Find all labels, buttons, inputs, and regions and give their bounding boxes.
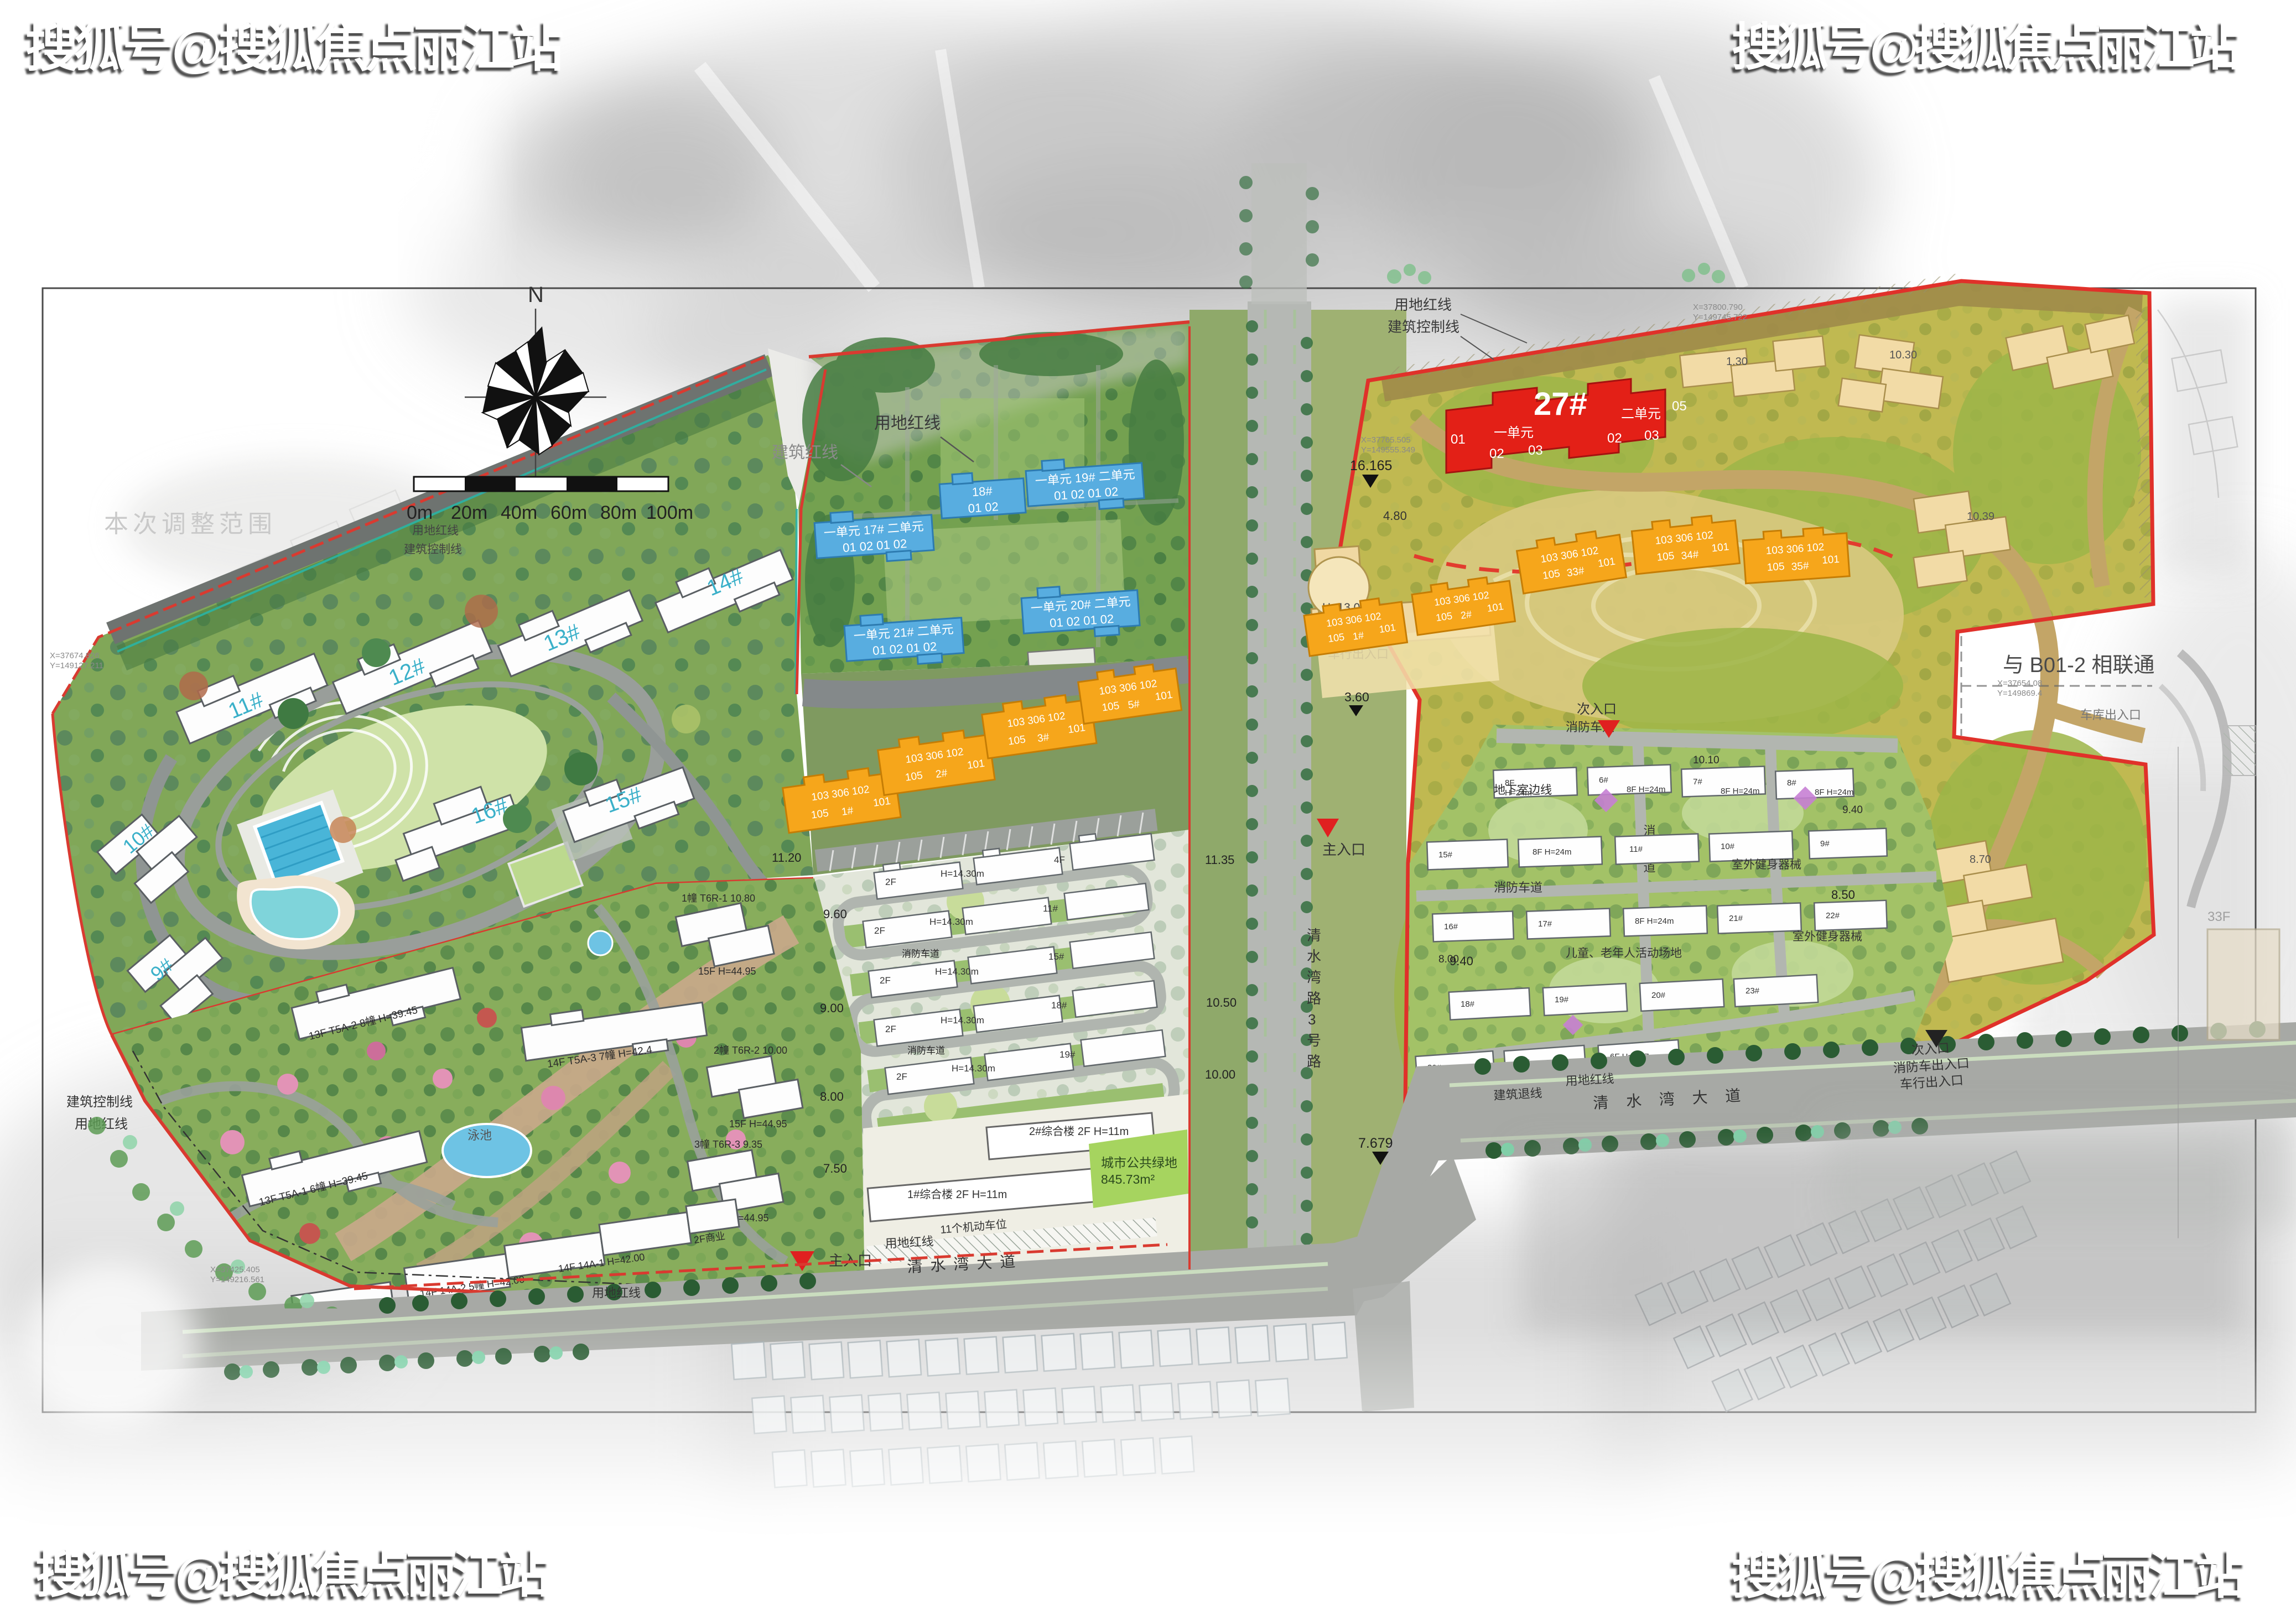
svg-text:4.80: 4.80 xyxy=(1383,509,1407,523)
svg-text:2#: 2# xyxy=(935,767,948,780)
svg-text:9.40: 9.40 xyxy=(1842,804,1863,816)
svg-text:消防车道: 消防车道 xyxy=(1494,881,1542,894)
svg-text:消防车道: 消防车道 xyxy=(907,1045,945,1056)
svg-text:8F H=24m: 8F H=24m xyxy=(1721,787,1759,796)
svg-text:城市公共绿地: 城市公共绿地 xyxy=(1101,1155,1177,1170)
svg-text:号: 号 xyxy=(1307,1032,1321,1049)
svg-text:8.70: 8.70 xyxy=(1970,853,1991,866)
svg-text:H=14.30m: H=14.30m xyxy=(952,1063,995,1074)
svg-text:03: 03 xyxy=(1528,443,1543,458)
svg-text:X=37800.790: X=37800.790 xyxy=(1693,303,1743,312)
svg-text:建筑退线: 建筑退线 xyxy=(1493,1086,1542,1102)
svg-text:用地红线: 用地红线 xyxy=(412,524,459,537)
svg-text:建筑控制线: 建筑控制线 xyxy=(404,543,462,556)
svg-text:本次调整范围: 本次调整范围 xyxy=(104,511,277,538)
svg-text:105: 105 xyxy=(1435,610,1453,623)
svg-text:建筑控制线: 建筑控制线 xyxy=(66,1095,133,1110)
svg-text:次入口: 次入口 xyxy=(1577,702,1617,717)
svg-text:地下室边线: 地下室边线 xyxy=(1494,784,1552,797)
svg-text:8F H=24m: 8F H=24m xyxy=(1635,917,1674,926)
svg-text:105: 105 xyxy=(1767,561,1785,574)
svg-text:2F: 2F xyxy=(885,877,896,887)
svg-text:19#: 19# xyxy=(1555,995,1569,1004)
svg-text:Y=149745.722: Y=149745.722 xyxy=(1693,313,1747,322)
svg-text:15#: 15# xyxy=(1438,850,1453,860)
svg-text:X=37654.08: X=37654.08 xyxy=(1997,679,2042,688)
svg-text:105: 105 xyxy=(905,770,923,784)
svg-text:X=37674.826: X=37674.826 xyxy=(50,651,100,660)
svg-text:35#: 35# xyxy=(1791,560,1810,573)
svg-text:与 B01-2 相联通: 与 B01-2 相联通 xyxy=(2003,654,2155,677)
svg-text:搜狐号@搜狐焦点丽江站: 搜狐号@搜狐焦点丽江站 xyxy=(25,19,563,77)
svg-text:1#综合楼 2F H=11m: 1#综合楼 2F H=11m xyxy=(907,1188,1007,1201)
svg-text:儿童、老年人活动场地: 儿童、老年人活动场地 xyxy=(1566,947,1682,960)
svg-text:9.60: 9.60 xyxy=(823,907,847,921)
svg-text:湾: 湾 xyxy=(1307,969,1321,986)
svg-text:1幢 T6R-1 10.80: 1幢 T6R-1 10.80 xyxy=(682,893,755,904)
svg-text:8F H=24m: 8F H=24m xyxy=(1627,785,1665,794)
svg-text:次入口: 次入口 xyxy=(1911,1040,1950,1058)
svg-text:搜狐号@搜狐焦点丽江站: 搜狐号@搜狐焦点丽江站 xyxy=(1732,1548,2245,1604)
svg-text:室外健身器械: 室外健身器械 xyxy=(1793,930,1862,943)
svg-text:8F H=24m: 8F H=24m xyxy=(1815,788,1853,797)
svg-text:路: 路 xyxy=(1307,990,1321,1007)
svg-text:主入口: 主入口 xyxy=(1322,841,1365,858)
svg-text:用地红线: 用地红线 xyxy=(885,1234,934,1251)
svg-text:2幢 T6R-2 10.00: 2幢 T6R-2 10.00 xyxy=(714,1045,787,1056)
svg-text:101: 101 xyxy=(872,795,891,809)
svg-text:8F H=24m: 8F H=24m xyxy=(1533,847,1571,857)
svg-text:105: 105 xyxy=(1327,631,1346,644)
svg-text:搜狐号@搜狐焦点丽江站: 搜狐号@搜狐焦点丽江站 xyxy=(1732,19,2240,76)
svg-text:11#: 11# xyxy=(1629,845,1643,854)
svg-text:21#: 21# xyxy=(1729,914,1743,923)
svg-text:1#: 1# xyxy=(1352,629,1365,642)
svg-text:2F: 2F xyxy=(885,1024,896,1034)
svg-text:101: 101 xyxy=(1378,622,1396,635)
svg-text:用地红线: 用地红线 xyxy=(1565,1071,1614,1088)
svg-text:34#: 34# xyxy=(1681,549,1700,562)
svg-text:0m: 0m xyxy=(407,502,433,523)
svg-text:100m: 100m xyxy=(646,502,693,523)
svg-text:11.35: 11.35 xyxy=(1205,853,1234,867)
svg-text:H=14.30m: H=14.30m xyxy=(935,966,979,977)
svg-text:6#: 6# xyxy=(1599,775,1608,785)
svg-text:9#: 9# xyxy=(1820,839,1830,849)
svg-text:20m: 20m xyxy=(451,502,487,523)
svg-text:1.30: 1.30 xyxy=(1726,356,1748,368)
svg-text:27#: 27# xyxy=(1534,386,1587,422)
svg-text:11#: 11# xyxy=(1043,903,1058,914)
svg-text:105: 105 xyxy=(1007,733,1026,747)
svg-text:清: 清 xyxy=(1307,927,1321,944)
svg-text:2F: 2F xyxy=(896,1071,907,1082)
svg-text:10.30: 10.30 xyxy=(1889,349,1917,361)
svg-text:消防车道: 消防车道 xyxy=(902,949,939,959)
svg-text:3幢 T6R-3 9.35: 3幢 T6R-3 9.35 xyxy=(694,1139,762,1150)
svg-text:17#: 17# xyxy=(1538,919,1552,929)
svg-text:18#: 18# xyxy=(1051,1000,1067,1011)
svg-text:Y=149869.4: Y=149869.4 xyxy=(1997,689,2042,698)
svg-text:10.00: 10.00 xyxy=(1205,1068,1235,1081)
svg-text:搜狐号@搜狐焦点丽江站: 搜狐号@搜狐焦点丽江站 xyxy=(35,1547,549,1603)
svg-text:01: 01 xyxy=(1451,432,1466,447)
svg-text:3: 3 xyxy=(1308,1011,1316,1028)
svg-text:03: 03 xyxy=(1644,428,1659,443)
svg-text:8.50: 8.50 xyxy=(1831,888,1855,902)
svg-text:01 02: 01 02 xyxy=(968,499,999,516)
svg-text:9.00: 9.00 xyxy=(820,1001,844,1015)
svg-text:8#: 8# xyxy=(1787,778,1796,788)
svg-text:101: 101 xyxy=(1711,541,1730,554)
svg-text:05: 05 xyxy=(1672,399,1687,414)
svg-text:18#: 18# xyxy=(972,484,993,499)
svg-text:101: 101 xyxy=(967,758,985,772)
svg-text:101: 101 xyxy=(1821,554,1840,566)
svg-text:9.40: 9.40 xyxy=(1450,954,1473,968)
svg-text:33F: 33F xyxy=(2207,909,2230,924)
svg-text:一单元: 一单元 xyxy=(1494,425,1534,440)
svg-text:105: 105 xyxy=(1656,550,1675,564)
svg-text:80m: 80m xyxy=(600,502,637,523)
svg-text:2#: 2# xyxy=(1460,608,1473,621)
svg-text:Y=149127.211: Y=149127.211 xyxy=(50,661,103,670)
svg-text:用地红线: 用地红线 xyxy=(874,414,941,433)
svg-text:N: N xyxy=(528,283,544,307)
svg-text:20#: 20# xyxy=(1651,991,1666,1000)
svg-text:15#: 15# xyxy=(1048,951,1064,962)
svg-text:二单元: 二单元 xyxy=(1621,407,1661,421)
svg-text:15F H=44.95: 15F H=44.95 xyxy=(698,966,756,977)
svg-text:H=14.30m: H=14.30m xyxy=(941,868,984,879)
svg-text:23#: 23# xyxy=(1746,986,1760,996)
svg-text:H=14.30m: H=14.30m xyxy=(941,1015,984,1026)
svg-text:101: 101 xyxy=(1155,689,1173,703)
svg-text:水: 水 xyxy=(1307,948,1321,965)
svg-text:10.50: 10.50 xyxy=(1206,996,1237,1009)
svg-text:室外健身器械: 室外健身器械 xyxy=(1732,858,1801,871)
svg-text:19#: 19# xyxy=(1059,1049,1076,1060)
svg-text:40m: 40m xyxy=(501,502,537,523)
svg-text:2F: 2F xyxy=(880,975,891,986)
svg-text:101: 101 xyxy=(1486,601,1504,614)
svg-text:3#: 3# xyxy=(1037,731,1050,745)
svg-text:845.73m²: 845.73m² xyxy=(1101,1172,1155,1186)
svg-text:Y=149216.561: Y=149216.561 xyxy=(210,1275,264,1284)
svg-text:11.20: 11.20 xyxy=(772,851,801,865)
svg-text:4F: 4F xyxy=(1054,855,1065,865)
svg-text:10.10: 10.10 xyxy=(1693,754,1720,766)
svg-text:路: 路 xyxy=(1307,1053,1321,1070)
svg-text:105: 105 xyxy=(1101,700,1120,714)
svg-text:Y=149555.349: Y=149555.349 xyxy=(1361,445,1415,455)
svg-text:X=37765.505: X=37765.505 xyxy=(1361,435,1411,445)
svg-text:泳池: 泳池 xyxy=(467,1128,492,1142)
svg-text:18#: 18# xyxy=(1461,1000,1475,1009)
svg-text:1#: 1# xyxy=(841,805,854,818)
svg-text:16#: 16# xyxy=(1444,922,1458,931)
svg-text:105: 105 xyxy=(811,808,829,821)
svg-text:2#综合楼 2F H=11m: 2#综合楼 2F H=11m xyxy=(1029,1125,1129,1138)
svg-text:10#: 10# xyxy=(1721,842,1735,851)
svg-text:10.39: 10.39 xyxy=(1967,511,1994,523)
svg-text:7.679: 7.679 xyxy=(1358,1136,1393,1151)
svg-text:建筑红线: 建筑红线 xyxy=(772,444,838,462)
svg-text:02: 02 xyxy=(1607,431,1622,446)
svg-text:2F: 2F xyxy=(874,925,885,936)
svg-text:3.60: 3.60 xyxy=(1344,690,1369,704)
svg-text:22#: 22# xyxy=(1826,911,1840,920)
svg-text:H=14.30m: H=14.30m xyxy=(929,917,973,927)
svg-text:7.50: 7.50 xyxy=(823,1162,847,1175)
svg-text:16.165: 16.165 xyxy=(1350,458,1392,473)
svg-text:5#: 5# xyxy=(1127,698,1140,711)
svg-text:8.00: 8.00 xyxy=(820,1090,844,1104)
svg-text:用地红线: 用地红线 xyxy=(1394,296,1452,313)
svg-text:7#: 7# xyxy=(1693,777,1702,787)
svg-text:15F H=44.95: 15F H=44.95 xyxy=(729,1118,787,1129)
svg-text:02: 02 xyxy=(1489,446,1504,461)
svg-text:车库出入口: 车库出入口 xyxy=(2080,708,2141,722)
svg-text:建筑控制线: 建筑控制线 xyxy=(1388,319,1459,335)
svg-text:60m: 60m xyxy=(550,502,587,523)
svg-text:X=37425.405: X=37425.405 xyxy=(210,1265,260,1274)
